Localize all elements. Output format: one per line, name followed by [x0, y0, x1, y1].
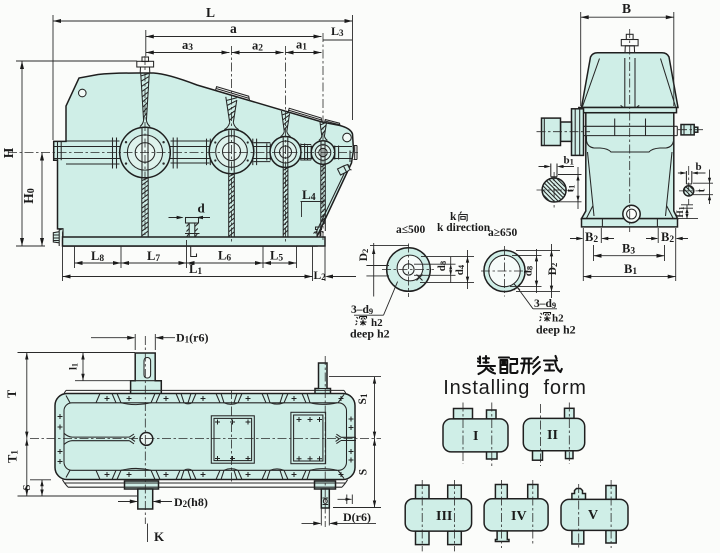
svg-text:S: S	[358, 469, 370, 475]
svg-text:deep h2: deep h2	[536, 323, 576, 337]
svg-text:a≤500: a≤500	[396, 224, 426, 236]
svg-text:3–d9: 3–d9	[534, 298, 556, 310]
svg-text:II: II	[547, 428, 558, 443]
svg-text:D2: D2	[547, 263, 559, 276]
svg-text:D2: D2	[358, 249, 370, 262]
svg-text:l1: l1	[69, 363, 80, 370]
svg-text:b1: b1	[564, 155, 574, 167]
svg-text:S1: S1	[357, 393, 369, 404]
svg-text:D1(r6): D1(r6)	[176, 331, 209, 345]
svg-text:a≥650: a≥650	[488, 227, 518, 239]
svg-text:D2(h8): D2(h8)	[174, 495, 208, 509]
svg-text:L2: L2	[314, 270, 327, 282]
svg-text:H: H	[1, 147, 16, 158]
svg-text:S: S	[22, 484, 33, 490]
svg-text:d4: d4	[454, 264, 466, 275]
svg-text:H1: H1	[676, 206, 686, 217]
svg-text:V: V	[588, 508, 598, 523]
svg-text:3–d9: 3–d9	[351, 304, 373, 316]
svg-text:b: b	[696, 161, 702, 173]
svg-text:deep h2: deep h2	[350, 327, 390, 341]
svg-text:t1: t1	[566, 185, 577, 193]
svg-text:T: T	[5, 389, 19, 398]
svg-text:III: III	[436, 509, 452, 524]
svg-text:D(r6): D(r6)	[343, 510, 371, 524]
svg-text:I: I	[473, 429, 478, 444]
svg-text:Installing form: Installing form	[443, 377, 587, 399]
svg-text:k direction: k direction	[437, 222, 491, 234]
svg-text:d: d	[198, 201, 206, 216]
svg-text:K: K	[154, 529, 165, 544]
svg-text:B: B	[622, 1, 631, 16]
svg-text:L: L	[206, 5, 215, 20]
svg-text:IV: IV	[511, 509, 527, 524]
svg-text:t: t	[696, 188, 708, 192]
svg-text:d8: d8	[523, 266, 535, 276]
svg-text:d8: d8	[436, 261, 448, 271]
svg-text:a: a	[230, 21, 237, 36]
